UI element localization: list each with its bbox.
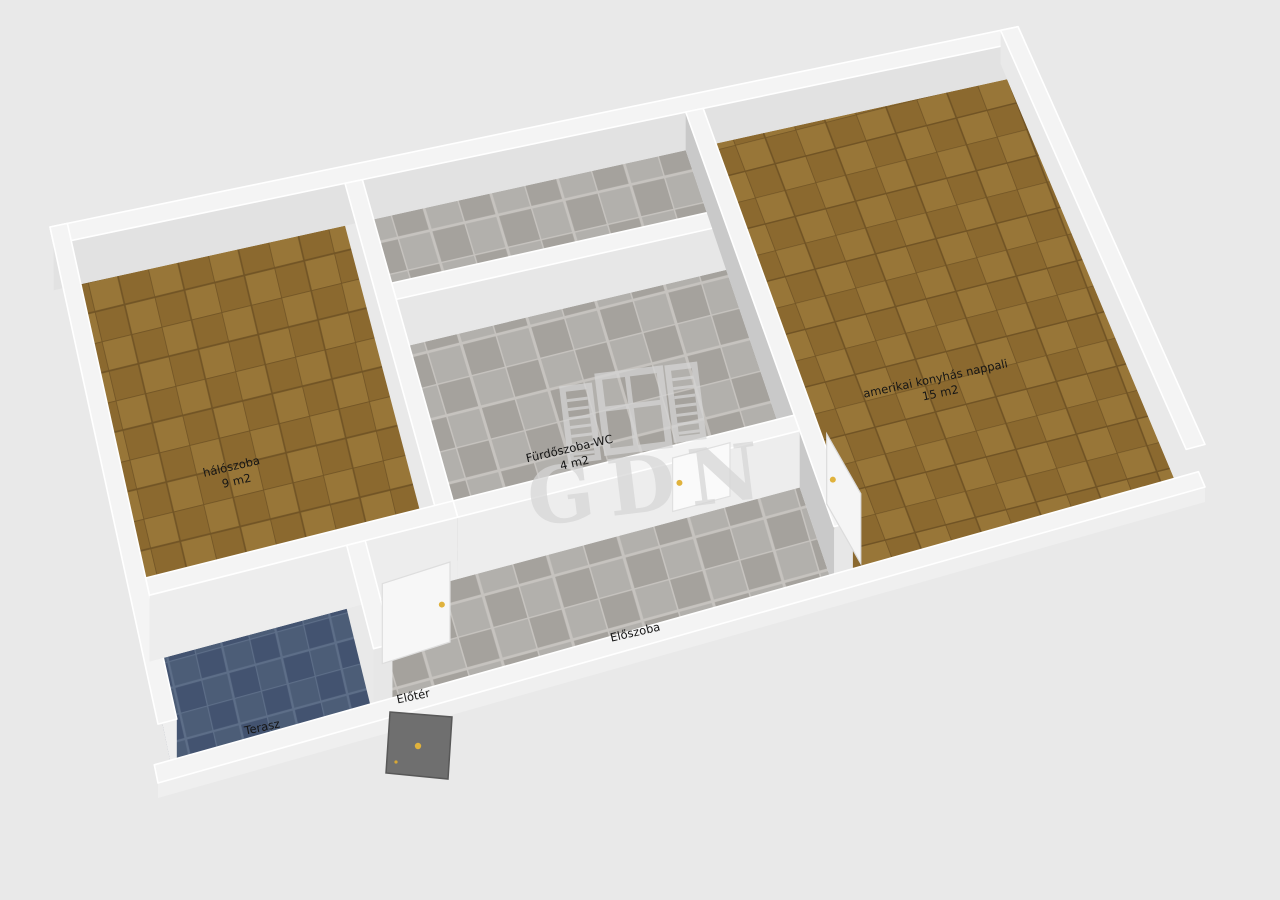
door-handle xyxy=(439,602,445,608)
door-handle xyxy=(415,743,421,749)
entrance-door xyxy=(386,712,452,779)
door-handle xyxy=(830,477,836,483)
floorplan-3d-view: GDN hálószoba 9 m2 Fürdőszoba-WC 4 m2 am… xyxy=(0,0,1280,900)
floorplan-scene xyxy=(50,27,1205,798)
